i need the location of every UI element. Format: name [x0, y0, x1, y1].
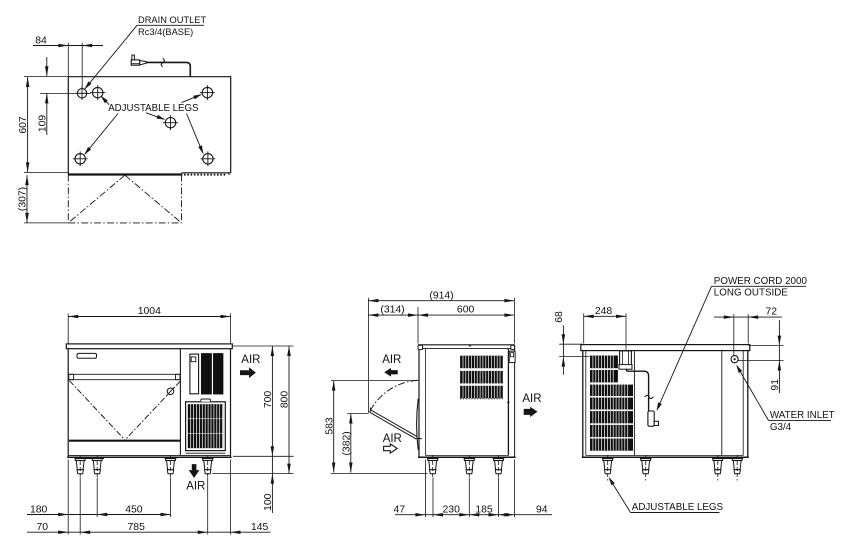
svg-text:785: 785 [128, 522, 146, 533]
svg-text:600: 600 [457, 305, 475, 316]
svg-text:ADJUSTABLE LEGS: ADJUSTABLE LEGS [632, 502, 724, 513]
svg-text:(382): (382) [341, 431, 352, 455]
svg-text:700: 700 [263, 391, 274, 409]
svg-text:84: 84 [35, 36, 47, 47]
svg-text:68: 68 [554, 311, 565, 323]
svg-text:G3/4: G3/4 [770, 422, 792, 433]
svg-text:185: 185 [475, 505, 493, 516]
svg-text:248: 248 [595, 306, 613, 317]
svg-text:AIR: AIR [382, 354, 401, 366]
svg-text:(914): (914) [429, 290, 453, 301]
svg-text:100: 100 [263, 493, 274, 511]
svg-text:47: 47 [394, 505, 406, 516]
svg-text:94: 94 [536, 505, 548, 516]
svg-text:(307): (307) [18, 187, 29, 211]
svg-text:180: 180 [30, 504, 48, 515]
svg-text:230: 230 [443, 505, 461, 516]
svg-text:91: 91 [770, 379, 781, 391]
svg-text:145: 145 [251, 522, 269, 533]
svg-text:AIR: AIR [383, 433, 402, 445]
svg-text:(314): (314) [380, 305, 404, 316]
svg-text:WATER INLET: WATER INLET [770, 410, 835, 421]
svg-text:607: 607 [18, 116, 29, 134]
svg-text:LONG OUTSIDE: LONG OUTSIDE [714, 287, 788, 298]
svg-text:POWER CORD 2000: POWER CORD 2000 [714, 276, 808, 287]
svg-text:DRAIN OUTLET: DRAIN OUTLET [138, 15, 207, 25]
svg-text:AIR: AIR [241, 354, 260, 366]
svg-text:450: 450 [125, 504, 143, 515]
svg-text:800: 800 [280, 391, 291, 409]
svg-text:72: 72 [766, 307, 778, 318]
svg-text:109: 109 [37, 115, 48, 133]
svg-text:AIR: AIR [186, 481, 205, 493]
svg-text:AIR: AIR [522, 393, 541, 405]
svg-text:1004: 1004 [138, 306, 161, 317]
svg-text:Rc3/4(BASE): Rc3/4(BASE) [138, 27, 193, 37]
svg-text:70: 70 [37, 522, 49, 533]
svg-text:ADJUSTABLE LEGS: ADJUSTABLE LEGS [108, 103, 199, 114]
svg-text:583: 583 [324, 417, 335, 435]
